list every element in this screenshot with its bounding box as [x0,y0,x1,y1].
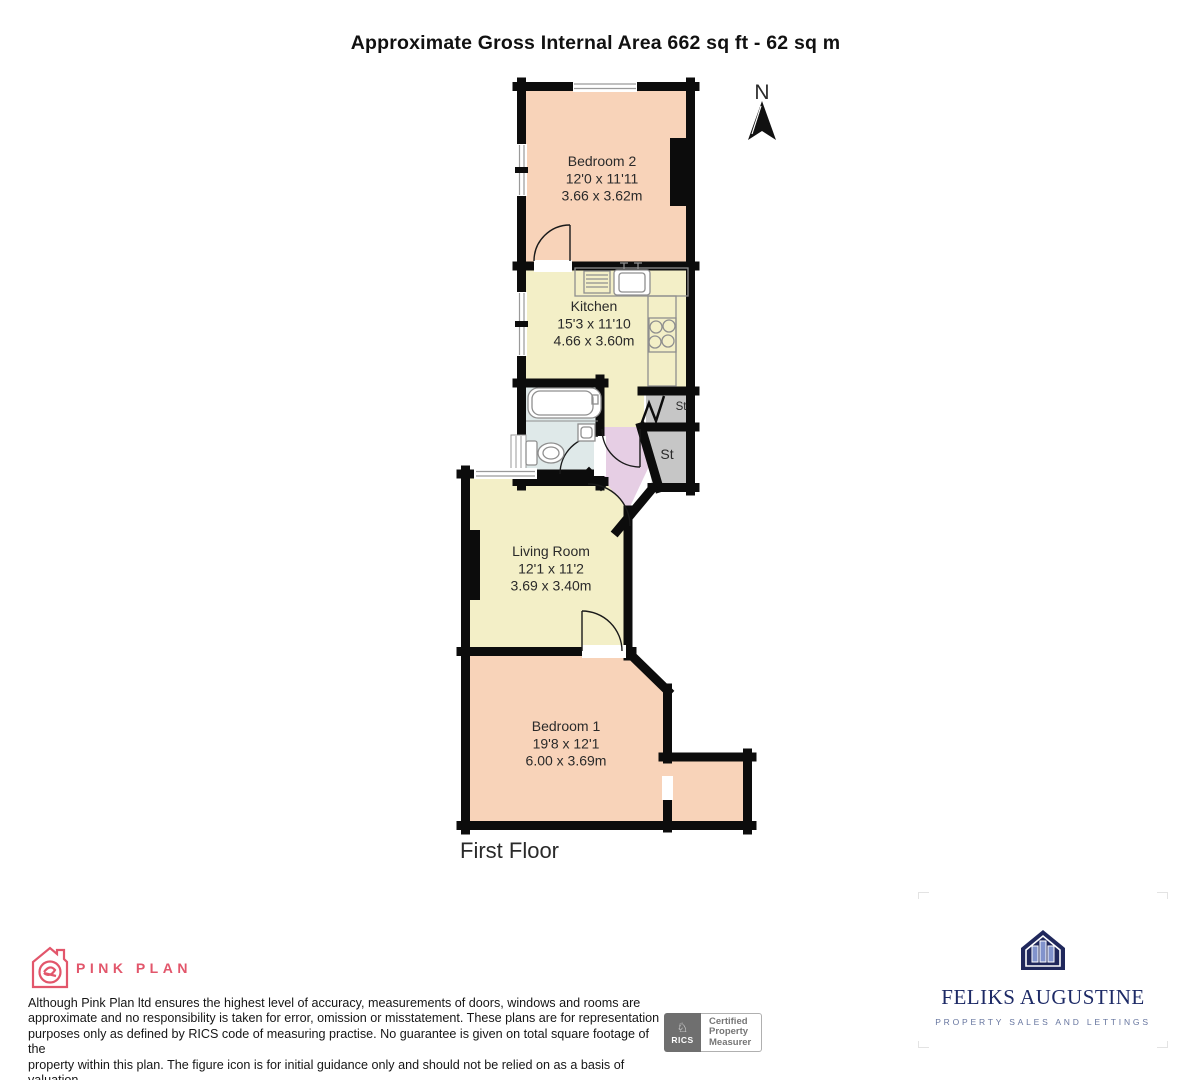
disclaimer-line: purposes only as defined by RICS code of… [28,1027,668,1058]
pink-plan-brand: PINK PLAN [76,960,192,976]
chimney-breast-living [461,530,480,600]
rics-brand: RICS [671,1035,693,1045]
window-bedroom2-left [515,144,528,196]
bathtub-icon [528,388,601,418]
agency-inner: FELIKS AUGUSTINE PROPERTY SALES AND LETT… [918,928,1168,1027]
agency-tagline: PROPERTY SALES AND LETTINGS [918,1017,1168,1027]
north-label: N [754,81,769,104]
crop-mark [918,1041,929,1048]
chimney-breast-bedroom2 [670,138,691,206]
kitchen-metric: 4.66 x 3.60m [554,333,635,349]
bedroom2-name: Bedroom 2 [568,153,637,169]
north-arrow-icon [748,101,776,140]
disclaimer-line: property within this plan. The figure ic… [28,1058,668,1080]
basin-icon [578,424,595,441]
kitchen-imperial: 15'3 x 11'10 [557,316,631,332]
rics-cert-text: Certified Property Measurer [701,1013,762,1052]
storage-small-label: St [676,401,688,413]
north-arrow: N [748,81,776,140]
rics-lion-icon: ♘ [677,1021,689,1034]
rics-logo-box: ♘ RICS [664,1013,701,1052]
agency-house-icon [1019,928,1067,972]
bedroom1-name: Bedroom 1 [532,718,601,734]
bedroom1-imperial: 19'8 x 12'1 [533,736,600,752]
bedroom2-metric: 3.66 x 3.62m [562,188,643,204]
window-living-top [474,468,537,479]
floorplan-page: Approximate Gross Internal Area 662 sq f… [0,0,1191,1080]
pink-plan-logo-icon [26,942,74,990]
room-bedroom-1 [461,648,752,830]
living-metric: 3.69 x 3.40m [511,578,592,594]
toilet-icon [526,441,564,465]
bedroom2-imperial: 12'0 x 11'11 [566,171,639,187]
window-bedroom2-top [573,80,637,92]
rics-badge: ♘ RICS Certified Property Measurer [664,1013,762,1052]
disclaimer-text: Although Pink Plan ltd ensures the highe… [28,996,668,1080]
living-name: Living Room [512,543,590,559]
bedroom1-metric: 6.00 x 3.69m [526,753,607,769]
living-imperial: 12'1 x 11'2 [518,561,584,577]
crop-mark [1157,1041,1168,1048]
kitchen-name: Kitchen [571,298,618,314]
agency-logo-block: FELIKS AUGUSTINE PROPERTY SALES AND LETT… [918,890,1168,1052]
disclaimer-line: Although Pink Plan ltd ensures the highe… [28,996,668,1011]
storage-large-label: St [660,446,673,462]
house-icon [33,948,67,987]
floor-label: First Floor [460,838,559,863]
crop-mark [1157,892,1168,899]
agency-name: FELIKS AUGUSTINE [918,985,1168,1010]
disclaimer-line: approximate and no responsibility is tak… [28,1011,668,1026]
rics-cert-line: Measurer [709,1038,751,1049]
window-kitchen-left [515,292,528,356]
window-bathroom-left [511,435,526,469]
crop-mark [918,892,929,899]
